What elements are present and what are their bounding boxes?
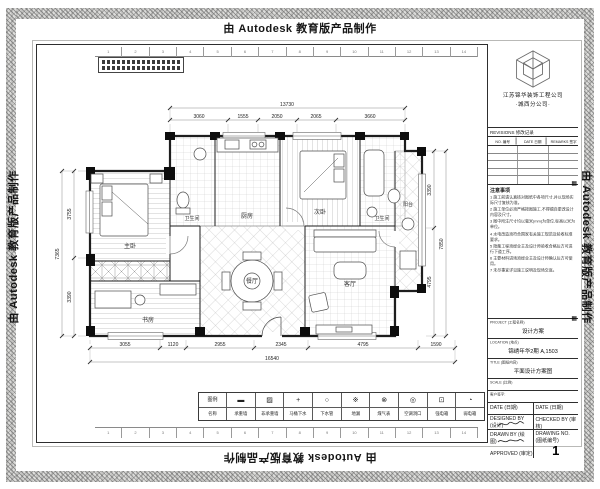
- revisions-empty-row: [488, 154, 578, 162]
- titleblock-logo-section: 江苏锦华装饰工程公司 ·城西分公司·: [488, 44, 578, 128]
- dim-left-1: 3755: [67, 208, 73, 219]
- ruler-number: 1: [95, 47, 122, 57]
- legend-item-label: 下水管: [315, 409, 339, 420]
- ruler-number: 5: [204, 47, 231, 57]
- location-label: LOCATION (地点): [490, 340, 567, 345]
- dim-top-total: 13730: [280, 102, 294, 108]
- project-label: PROJECT (工程名称): [490, 320, 567, 325]
- info-text-line: [102, 60, 180, 64]
- dim-right-2: 4795: [427, 276, 433, 287]
- autocad-plot-sheet: 由 Autodesk 教育版产品制作 由 Autodesk 教育版产品制作 由 …: [0, 0, 600, 489]
- drafter-signature: [496, 436, 526, 446]
- revisions-title: REVISIONS 修改记录: [488, 128, 578, 137]
- date-row: DATE (日期) DATE (日期): [488, 403, 578, 415]
- legend-header-cell: 图例 名称: [199, 393, 227, 420]
- dim-left-2: 3390: [67, 291, 73, 302]
- dim-bottom-3: 2955: [214, 342, 225, 348]
- drawing-title-value: 平面设计方案图: [490, 367, 576, 375]
- ruler-number: 8: [287, 428, 314, 438]
- project-value: 设计方案: [490, 327, 576, 335]
- ruler-number: 13: [423, 428, 450, 438]
- scale-field: SCALE (比例): [488, 379, 578, 391]
- ruler-number: 6: [232, 47, 259, 57]
- room-label-bath2: 卫生间: [374, 215, 389, 222]
- room-label-master: 主卧: [124, 242, 136, 250]
- legend-item: ◔ 弱电箱: [456, 393, 484, 420]
- note-item: 4 水电改造须符合国家有关施工规范及验收标准要求。: [490, 232, 576, 242]
- room-label-balcony: 阳台: [403, 201, 413, 208]
- dim-bottom-4: 2345: [275, 342, 286, 348]
- notes-list: 1 施工前请认真核对图纸中各项尺寸,并以现场实际尺寸复核为准。2 施工单位必须严…: [490, 195, 576, 274]
- dim-bottom-6: 1590: [430, 342, 441, 348]
- ruler-number: 10: [341, 47, 368, 57]
- ruler-number: 14: [451, 47, 478, 57]
- legend-item-label: 煤气表: [372, 409, 396, 420]
- drawing-no-value: 1: [536, 444, 577, 457]
- legend-item: ◎ 空调洞口: [399, 393, 428, 420]
- legend-item-symbol-icon: +: [284, 393, 312, 408]
- legend-items: ▬ 承重墙 ▨ 非承重墙 + 马桶下水 ○ 下水管 ※ 地漏 ⊗ 煤气表 ◎ 空…: [227, 393, 484, 420]
- ruler-number: 5: [204, 428, 231, 438]
- note-item: 1 施工前请认真核对图纸中各项尺寸,并以现场实际尺寸复核为准。: [490, 195, 576, 205]
- legend-item: ○ 下水管: [313, 393, 342, 420]
- legend-item: ▨ 非承重墙: [256, 393, 285, 420]
- frame-ruler-top: 1234567891011121314: [95, 47, 478, 57]
- ruler-number: 4: [177, 428, 204, 438]
- dim-top-2: 1555: [237, 114, 248, 120]
- room-label-living: 客厅: [344, 280, 356, 288]
- dim-top-1: 3060: [193, 114, 204, 120]
- dim-bottom-2: 1120: [168, 342, 179, 348]
- approved-label: APPROVED (审定): [490, 450, 533, 457]
- date2-label: DATE (日期): [536, 404, 577, 411]
- client-sign-field: 客户签字:: [488, 391, 578, 403]
- dim-top-4: 2065: [310, 114, 321, 120]
- watermark-top: 由 Autodesk 教育版产品制作: [0, 20, 600, 36]
- company-name-line1: 江苏锦华装饰工程公司: [488, 92, 578, 101]
- title-block: 江苏锦华装饰工程公司 ·城西分公司· REVISIONS 修改记录 NO. 编号…: [487, 44, 578, 443]
- ruler-number: 6: [232, 428, 259, 438]
- note-item: 5 隐蔽工程须经业主及设计师验收合格后方可进行下道工序。: [490, 244, 576, 254]
- ruler-number: 9: [314, 47, 341, 57]
- legend-item-label: 强电箱: [430, 409, 454, 420]
- room-label-bed2: 次卧: [314, 208, 326, 216]
- note-item: 2 施工单位必须严格按图施工,不得擅自更改设计内容及尺寸。: [490, 207, 576, 217]
- ruler-number: 3: [150, 428, 177, 438]
- legend-item-label: 马桶下水: [286, 409, 310, 420]
- ruler-number: 11: [369, 47, 396, 57]
- designed-checked-row: DESIGNED BY (设计) CHECKED BY (审核): [488, 415, 578, 430]
- ruler-number: 3: [150, 47, 177, 57]
- legend-item-label: 地漏: [344, 409, 368, 420]
- border-texture-bottom: [6, 471, 594, 482]
- room-label-dining: 餐厅: [246, 277, 258, 285]
- revisions-col-remarks: REMARKS 签字: [550, 137, 576, 144]
- ruler-number: 7: [259, 47, 286, 57]
- dim-top-5: 3660: [364, 114, 375, 120]
- floor-plan: 主卧 次卧 书房 餐厅 客厅 厨房 卫生间 卫生间 阳台 13730 3060 …: [50, 96, 470, 368]
- ruler-number: 4: [177, 47, 204, 57]
- location-value: 锦绣年华2期 A,1503: [490, 347, 576, 355]
- company-name-line2: ·城西分公司·: [488, 101, 578, 110]
- legend-item-symbol-icon: ⊡: [428, 393, 456, 408]
- scale-label: SCALE (比例): [490, 380, 567, 385]
- notes-title: 注意事项: [490, 187, 576, 194]
- dim-right-1: 3390: [427, 184, 433, 195]
- watermark-left: 由 Autodesk 教育版产品制作: [5, 116, 21, 378]
- legend-item: ⊗ 煤气表: [370, 393, 399, 420]
- dim-top-3: 2050: [271, 114, 282, 120]
- legend-item-symbol-icon: ▬: [227, 393, 255, 408]
- legend-item-symbol-icon: ○: [313, 393, 341, 408]
- snap-marker-icon: ▦: [571, 316, 577, 322]
- company-cube-logo-icon: [514, 48, 552, 90]
- revisions-col-no: NO. 编号: [490, 137, 517, 144]
- legend-item-symbol-icon: ⊗: [370, 393, 398, 408]
- room-label-bath1: 卫生间: [184, 215, 199, 222]
- legend-item-label: 承重墙: [229, 409, 253, 420]
- ruler-number: 8: [287, 47, 314, 57]
- checked-by-label: CHECKED BY (审核): [536, 416, 577, 430]
- sheet-info-box: [98, 57, 184, 73]
- ruler-number: 2: [122, 428, 149, 438]
- note-item: 3 图中所注尺寸均以毫米(mm)为单位,标高以米为单位。: [490, 219, 576, 229]
- drawing-title-label: TITLE (图纸内容): [490, 360, 567, 365]
- room-label-study: 书房: [142, 316, 154, 324]
- legend-header-symbol: 图例: [199, 393, 226, 408]
- legend-bar: 图例 名称 ▬ 承重墙 ▨ 非承重墙 + 马桶下水 ○ 下水管 ※ 地漏 ⊗ 煤…: [198, 392, 485, 421]
- ruler-number: 12: [396, 428, 423, 438]
- revisions-empty-row: [488, 161, 578, 169]
- legend-item-symbol-icon: ※: [342, 393, 370, 408]
- dim-bottom-5: 4795: [357, 342, 368, 348]
- legend-item-symbol-icon: ◔: [456, 393, 484, 408]
- note-item: 6 主要材料进场须经业主及设计师确认后方可使用。: [490, 256, 576, 266]
- legend-item-label: 非承重墙: [258, 409, 282, 420]
- ruler-number: 2: [122, 47, 149, 57]
- legend-item-symbol-icon: ▨: [256, 393, 284, 408]
- revisions-empty-row: [488, 176, 578, 184]
- date-label: DATE (日期): [490, 404, 531, 411]
- ruler-number: 10: [341, 428, 368, 438]
- legend-item: + 马桶下水: [284, 393, 313, 420]
- designer-signature: [496, 419, 526, 429]
- dim-left-total: 7365: [55, 248, 61, 259]
- legend-item: ⊡ 强电箱: [428, 393, 457, 420]
- legend-item-label: 空调洞口: [401, 409, 425, 420]
- ruler-number: 7: [259, 428, 286, 438]
- drawn-drawingno-row: DRAWN BY (绘图) APPROVED (审定) DRAWING NO. …: [488, 430, 578, 458]
- dim-right-total: 7850: [439, 238, 445, 249]
- ruler-number: 12: [396, 47, 423, 57]
- legend-item-symbol-icon: ◎: [399, 393, 427, 408]
- ruler-number: 13: [423, 47, 450, 57]
- revisions-header-row: NO. 编号 DATE 日期 REMARKS 签字: [488, 137, 578, 146]
- frame-ruler-bottom: 1234567891011121314: [95, 427, 478, 437]
- client-sign-label: 客户签字:: [490, 392, 567, 397]
- ruler-number: 1: [95, 428, 122, 438]
- dim-bottom-1: 3055: [119, 342, 130, 348]
- room-label-kitchen: 厨房: [241, 212, 253, 220]
- revisions-col-date: DATE 日期: [520, 137, 547, 144]
- dim-bottom-total: 16540: [265, 356, 279, 362]
- project-field: PROJECT (工程名称) 设计方案 ▦: [488, 319, 578, 339]
- ruler-number: 9: [314, 428, 341, 438]
- location-field: LOCATION (地点) 锦绣年华2期 A,1503: [488, 339, 578, 359]
- revisions-section: REVISIONS 修改记录 NO. 编号 DATE 日期 REMARKS 签字…: [488, 128, 578, 185]
- border-texture-top: [6, 8, 594, 19]
- revisions-empty-row: [488, 169, 578, 177]
- notes-section: 注意事项 1 施工前请认真核对图纸中各项尺寸,并以现场实际尺寸复核为准。2 施工…: [488, 185, 578, 319]
- note-item: 7 未尽事宜详见施工说明及现场交底。: [490, 268, 576, 273]
- revisions-rows: [488, 146, 578, 184]
- ruler-number: 11: [369, 428, 396, 438]
- drawing-title-field: TITLE (图纸内容) 平面设计方案图: [488, 359, 578, 379]
- ruler-number: 14: [451, 428, 478, 438]
- revisions-empty-row: [488, 146, 578, 154]
- legend-item-label: 弱电箱: [458, 409, 482, 420]
- legend-item: ※ 地漏: [342, 393, 371, 420]
- legend-item: ▬ 承重墙: [227, 393, 256, 420]
- legend-header-name: 名称: [201, 409, 224, 420]
- info-text-line: [102, 66, 180, 70]
